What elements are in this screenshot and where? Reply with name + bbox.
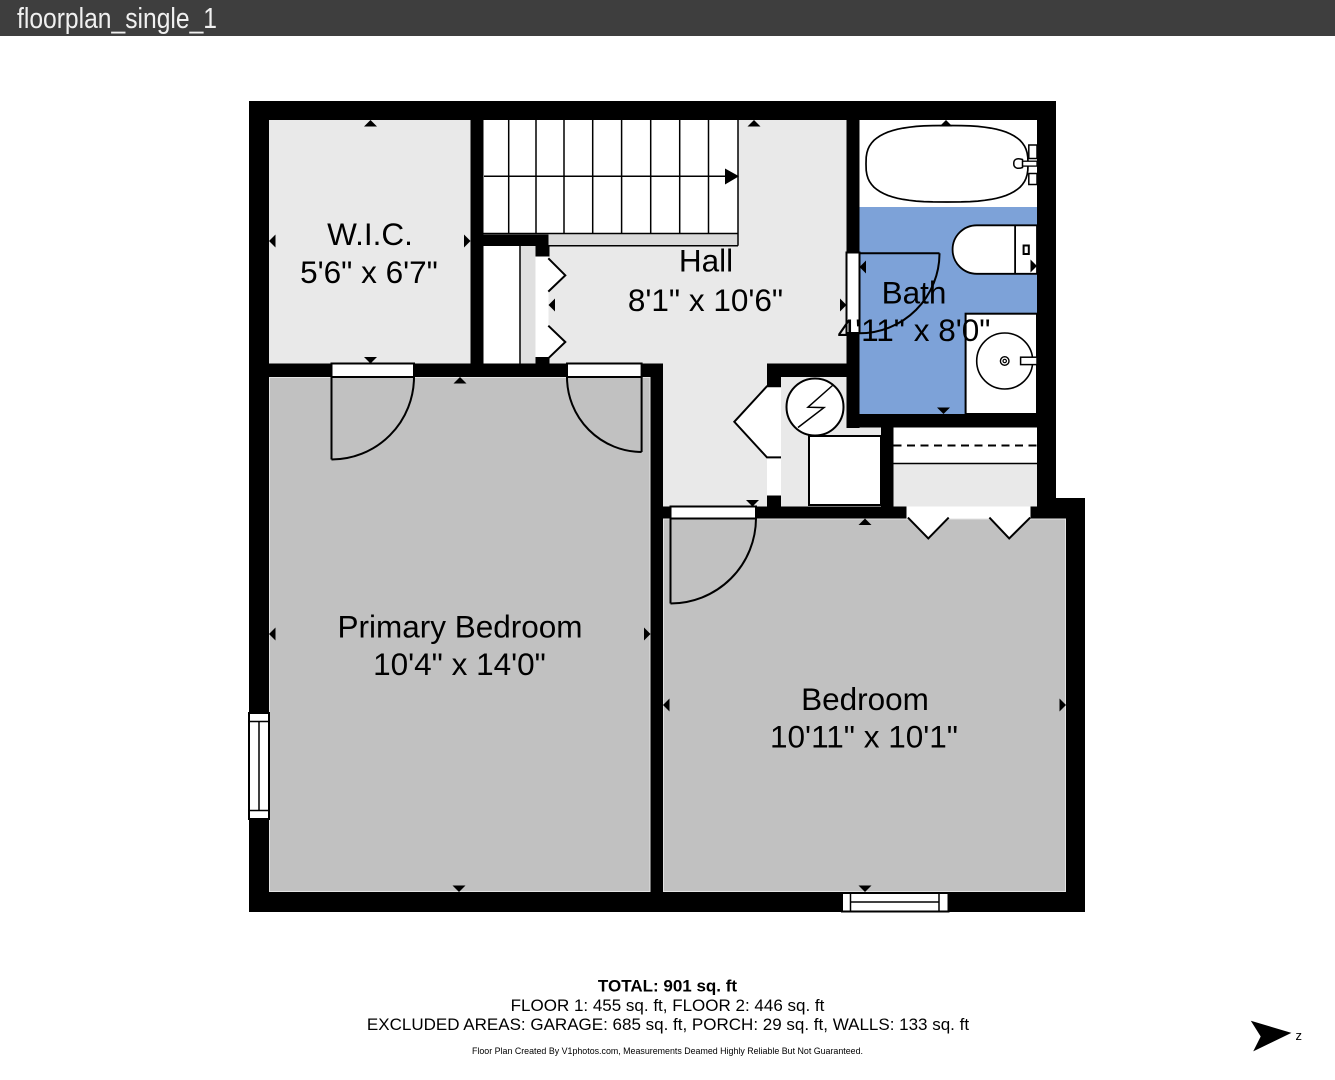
svg-text:5'6" x 6'7": 5'6" x 6'7" — [300, 254, 438, 290]
svg-text:Bath: Bath — [882, 275, 947, 311]
svg-text:floorplan_single_1: floorplan_single_1 — [17, 3, 217, 35]
svg-text:Bedroom: Bedroom — [801, 681, 929, 717]
svg-text:EXCLUDED AREAS: GARAGE: 685 sq: EXCLUDED AREAS: GARAGE: 685 sq. ft, PORC… — [367, 1015, 969, 1034]
svg-text:TOTAL: 901 sq. ft: TOTAL: 901 sq. ft — [598, 977, 738, 996]
svg-text:8'1" x 10'6": 8'1" x 10'6" — [628, 282, 783, 318]
svg-text:Floor Plan Created By V1photos: Floor Plan Created By V1photos.com, Meas… — [472, 1046, 863, 1056]
svg-text:4'11" x 8'0": 4'11" x 8'0" — [838, 312, 991, 348]
svg-text:Primary Bedroom: Primary Bedroom — [337, 609, 582, 645]
svg-text:Hall: Hall — [679, 243, 733, 279]
svg-text:FLOOR 1: 455 sq. ft, FLOOR 2:: FLOOR 1: 455 sq. ft, FLOOR 2: 446 sq. ft — [511, 996, 825, 1015]
svg-text:W.I.C.: W.I.C. — [327, 216, 413, 252]
svg-text:z: z — [1296, 1028, 1303, 1043]
svg-text:10'11" x 10'1": 10'11" x 10'1" — [770, 719, 958, 755]
svg-text:10'4" x 14'0": 10'4" x 14'0" — [373, 646, 546, 682]
